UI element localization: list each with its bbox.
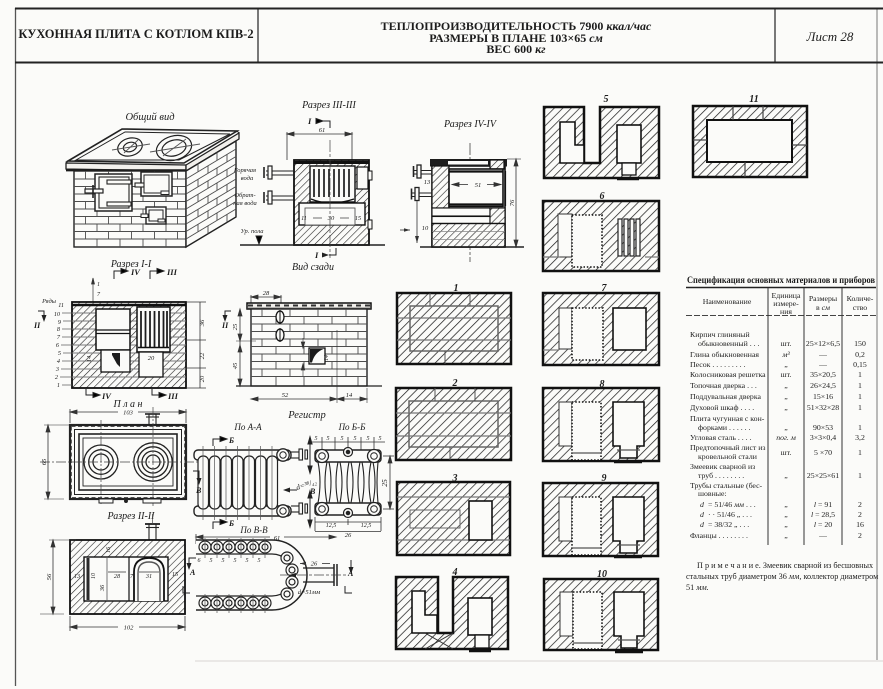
svg-text:А: А [189, 568, 196, 577]
svg-text:шт.: шт. [781, 448, 792, 457]
svg-text:Ур. пола: Ур. пола [240, 228, 263, 235]
svg-text:d: d [700, 510, 704, 519]
svg-text:76: 76 [509, 199, 516, 206]
svg-text:25×25×61: 25×25×61 [807, 471, 839, 480]
svg-text:0,15: 0,15 [853, 360, 867, 369]
svg-text:22: 22 [199, 352, 206, 359]
svg-text:d: d [700, 500, 704, 509]
svg-text:—: — [818, 350, 827, 359]
svg-text:Размеры: Размеры [809, 294, 838, 303]
svg-text:III: III [166, 267, 178, 277]
svg-text:„: „ [784, 510, 788, 519]
svg-text:ство: ство [853, 303, 867, 312]
svg-text:28: 28 [114, 573, 121, 580]
svg-text:25×12×6,5: 25×12×6,5 [806, 339, 840, 348]
svg-text:5: 5 [354, 436, 357, 442]
svg-text:III: III [167, 391, 179, 401]
svg-text:обыкновенный . . .: обыкновенный . . . [698, 339, 760, 348]
svg-text:16: 16 [105, 546, 112, 553]
svg-text:пог. м: пог. м [776, 433, 796, 442]
svg-text:8: 8 [57, 326, 61, 333]
svg-text:150: 150 [854, 339, 866, 348]
svg-text:Вид сзади: Вид сзади [292, 262, 334, 273]
svg-text:Горячая: Горячая [233, 167, 256, 174]
svg-text:5: 5 [246, 558, 249, 564]
svg-text:5: 5 [327, 436, 330, 442]
svg-text:10: 10 [54, 311, 61, 318]
svg-text:Б: Б [228, 519, 234, 528]
svg-text:14: 14 [86, 355, 93, 362]
svg-text:25: 25 [380, 479, 389, 487]
svg-text:5 ×70: 5 ×70 [814, 448, 832, 457]
svg-text:10: 10 [90, 572, 97, 579]
svg-text:5: 5 [367, 436, 370, 442]
svg-text:По В-В: По В-В [239, 525, 268, 535]
svg-text:Глина обыкновенная: Глина обыкновенная [690, 350, 759, 359]
svg-text:65: 65 [41, 458, 48, 465]
svg-text:„: „ [784, 403, 788, 412]
svg-text:1: 1 [57, 382, 60, 389]
svg-text:51×32×28: 51×32×28 [807, 403, 839, 412]
svg-text:1: 1 [858, 448, 862, 457]
svg-text:IV: IV [130, 267, 141, 277]
svg-text:1: 1 [858, 381, 862, 390]
svg-text:I: I [314, 250, 319, 260]
svg-text:d=51мм: d=51мм [298, 589, 320, 596]
svg-text:12,5: 12,5 [361, 523, 372, 529]
svg-text:15: 15 [355, 215, 361, 222]
svg-text:6: 6 [198, 558, 201, 564]
svg-text:Регистр: Регистр [287, 410, 326, 421]
svg-text:3: 3 [55, 366, 59, 373]
svg-text:20: 20 [199, 375, 206, 382]
svg-text:м³: м³ [781, 350, 790, 359]
svg-text:61: 61 [319, 127, 326, 134]
svg-text:Угловая сталь . . . .: Угловая сталь . . . . [690, 433, 752, 442]
svg-text:36: 36 [199, 319, 206, 327]
svg-text:форками . . . . . .: форками . . . . . . [698, 423, 751, 432]
svg-text:1: 1 [858, 471, 862, 480]
svg-text:5: 5 [234, 558, 237, 564]
svg-text:ВЕС 600 кг: ВЕС 600 кг [486, 42, 546, 56]
svg-text:15: 15 [172, 571, 178, 578]
svg-text:„: „ [784, 531, 788, 540]
svg-text:Количе-: Количе- [847, 294, 874, 303]
svg-text:36: 36 [99, 584, 106, 592]
svg-text:= 38/32 „ . . .: = 38/32 „ . . . [708, 520, 749, 529]
svg-text:П л а н: П л а н [112, 399, 142, 410]
svg-text:Поддувальная дверка: Поддувальная дверка [690, 392, 761, 401]
svg-text:5: 5 [315, 436, 318, 442]
svg-text:Разрез II-II: Разрез II-II [107, 511, 156, 522]
svg-text:26: 26 [311, 561, 318, 568]
svg-text:45: 45 [232, 362, 239, 369]
svg-text:шовные:: шовные: [698, 489, 727, 498]
svg-text:Спецификация основных материал: Спецификация основных материалов и прибо… [687, 275, 875, 286]
svg-text:11: 11 [749, 94, 758, 105]
svg-text:103: 103 [123, 410, 134, 417]
svg-text:По А-А: По А-А [233, 422, 262, 432]
svg-text:КУХОННАЯ ПЛИТА С КОТЛОМ КПВ-2: КУХОННАЯ ПЛИТА С КОТЛОМ КПВ-2 [18, 27, 253, 41]
svg-text:Наименование: Наименование [703, 297, 752, 306]
svg-text:26: 26 [345, 532, 352, 539]
svg-text:II: II [221, 321, 229, 330]
svg-text:11: 11 [58, 302, 64, 309]
svg-text:стальных труб диаметром 36 мм,: стальных труб диаметром 36 мм, коллектор… [686, 572, 878, 581]
svg-text:„: „ [784, 471, 788, 480]
svg-text:31: 31 [145, 573, 152, 580]
svg-text:1: 1 [858, 370, 862, 379]
svg-text:51 мм.: 51 мм. [686, 583, 709, 592]
svg-text:Колосниковая решетка: Колосниковая решетка [690, 370, 766, 379]
svg-text:1: 1 [858, 392, 862, 401]
svg-text:l = 28,5: l = 28,5 [811, 510, 835, 519]
svg-text:11: 11 [301, 215, 307, 222]
svg-text:вода: вода [241, 175, 253, 182]
svg-text:„: „ [784, 423, 788, 432]
svg-text:I: I [307, 116, 312, 126]
svg-text:ная вода: ная вода [233, 200, 257, 207]
svg-text:„: „ [784, 500, 788, 509]
svg-text:Обрат-: Обрат- [234, 192, 255, 199]
svg-text:2: 2 [55, 374, 58, 381]
svg-text:10: 10 [422, 225, 429, 232]
svg-text:51: 51 [475, 182, 482, 189]
svg-text:IV: IV [101, 391, 112, 401]
svg-text:Фланцы . . . . . . . .: Фланцы . . . . . . . . [690, 531, 748, 540]
svg-text:28: 28 [263, 290, 270, 297]
svg-text:Общий вид: Общий вид [125, 112, 174, 123]
svg-text:„: „ [784, 360, 788, 369]
svg-text:„: „ [784, 520, 788, 529]
svg-text:3×3×0,4: 3×3×0,4 [810, 433, 836, 442]
svg-text:13: 13 [74, 573, 80, 580]
svg-text:По Б-Б: По Б-Б [338, 422, 367, 432]
svg-text:Разрез III-III: Разрез III-III [301, 100, 356, 111]
svg-text:5: 5 [258, 558, 261, 564]
svg-text:l = 20: l = 20 [814, 520, 832, 529]
svg-text:16: 16 [856, 520, 864, 529]
svg-text:52: 52 [282, 392, 289, 399]
svg-text:Плита чугунная с кон-: Плита чугунная с кон- [690, 414, 765, 423]
svg-text:56: 56 [46, 573, 53, 580]
svg-text:кровельной стали: кровельной стали [698, 452, 757, 461]
svg-text:7: 7 [97, 292, 101, 298]
svg-text:7: 7 [57, 334, 61, 341]
svg-text:13: 13 [424, 179, 431, 186]
svg-text:5: 5 [222, 558, 225, 564]
svg-text:Топочная дверка . . .: Топочная дверка . . . [690, 381, 757, 390]
svg-text:25: 25 [232, 323, 239, 330]
svg-text:102: 102 [124, 625, 135, 632]
svg-text:шт.: шт. [781, 370, 792, 379]
svg-text:1: 1 [97, 282, 100, 288]
svg-text:Предтопочный лист из: Предтопочный лист из [690, 443, 766, 452]
svg-text:5: 5 [341, 436, 344, 442]
svg-text:Ряды: Ряды [41, 298, 56, 305]
svg-text:Разрез IV-IV: Разрез IV-IV [443, 119, 498, 130]
svg-text:в см: в см [816, 303, 830, 312]
svg-text:5: 5 [58, 350, 61, 357]
svg-text:—: — [818, 531, 827, 540]
svg-text:труб . . . . . . . .: труб . . . . . . . . [698, 471, 744, 480]
svg-text:6: 6 [56, 342, 60, 349]
svg-text:2: 2 [858, 531, 862, 540]
svg-text:ния: ния [780, 307, 792, 316]
svg-text:12,5: 12,5 [326, 523, 337, 529]
svg-text:„: „ [784, 392, 788, 401]
svg-text:9: 9 [58, 319, 61, 326]
svg-text:Духовой шкаф . . . .: Духовой шкаф . . . . [690, 403, 754, 412]
svg-text:l = 91: l = 91 [814, 500, 832, 509]
svg-text:3,2: 3,2 [855, 433, 865, 442]
svg-text:Кирпич глиняный: Кирпич глиняный [690, 330, 750, 339]
svg-text:= 51/46 мм . . .: = 51/46 мм . . . [708, 500, 756, 509]
svg-text:Змеевик сварной из: Змеевик сварной из [690, 462, 755, 471]
svg-text:2: 2 [858, 500, 862, 509]
svg-text:30: 30 [327, 215, 335, 222]
svg-text:шт.: шт. [781, 339, 792, 348]
svg-text:Лист 28: Лист 28 [806, 29, 854, 44]
svg-text:14: 14 [323, 355, 330, 361]
svg-text:35×20,5: 35×20,5 [810, 370, 836, 379]
svg-text:26×24,5: 26×24,5 [810, 381, 836, 390]
svg-text:15×16: 15×16 [813, 392, 833, 401]
svg-text:1: 1 [858, 423, 862, 432]
svg-text:В: В [195, 486, 202, 495]
svg-text:П р и м е ч а н и е. Змеевик: П р и м е ч а н и е. Змеевик сварной из … [697, 561, 873, 570]
svg-text:14: 14 [346, 392, 353, 399]
svg-text:d: d [700, 520, 704, 529]
svg-text:20: 20 [148, 355, 155, 362]
svg-text:4: 4 [57, 358, 60, 365]
svg-text:„: „ [784, 381, 788, 390]
svg-text:· · 51/46 „ . . .: · · 51/46 „ . . . [708, 510, 752, 519]
svg-text:—: — [818, 360, 827, 369]
svg-text:1: 1 [858, 403, 862, 412]
svg-text:0,2: 0,2 [855, 350, 865, 359]
svg-text:II: II [33, 321, 41, 330]
svg-text:5: 5 [210, 558, 213, 564]
svg-text:Б: Б [228, 436, 234, 445]
svg-text:5: 5 [604, 94, 609, 105]
svg-text:5: 5 [379, 436, 382, 442]
svg-text:2: 2 [858, 510, 862, 519]
svg-text:Песок . . . . . . . . .: Песок . . . . . . . . . [690, 360, 746, 369]
svg-text:В: В [309, 487, 316, 496]
svg-text:90×53: 90×53 [813, 423, 833, 432]
